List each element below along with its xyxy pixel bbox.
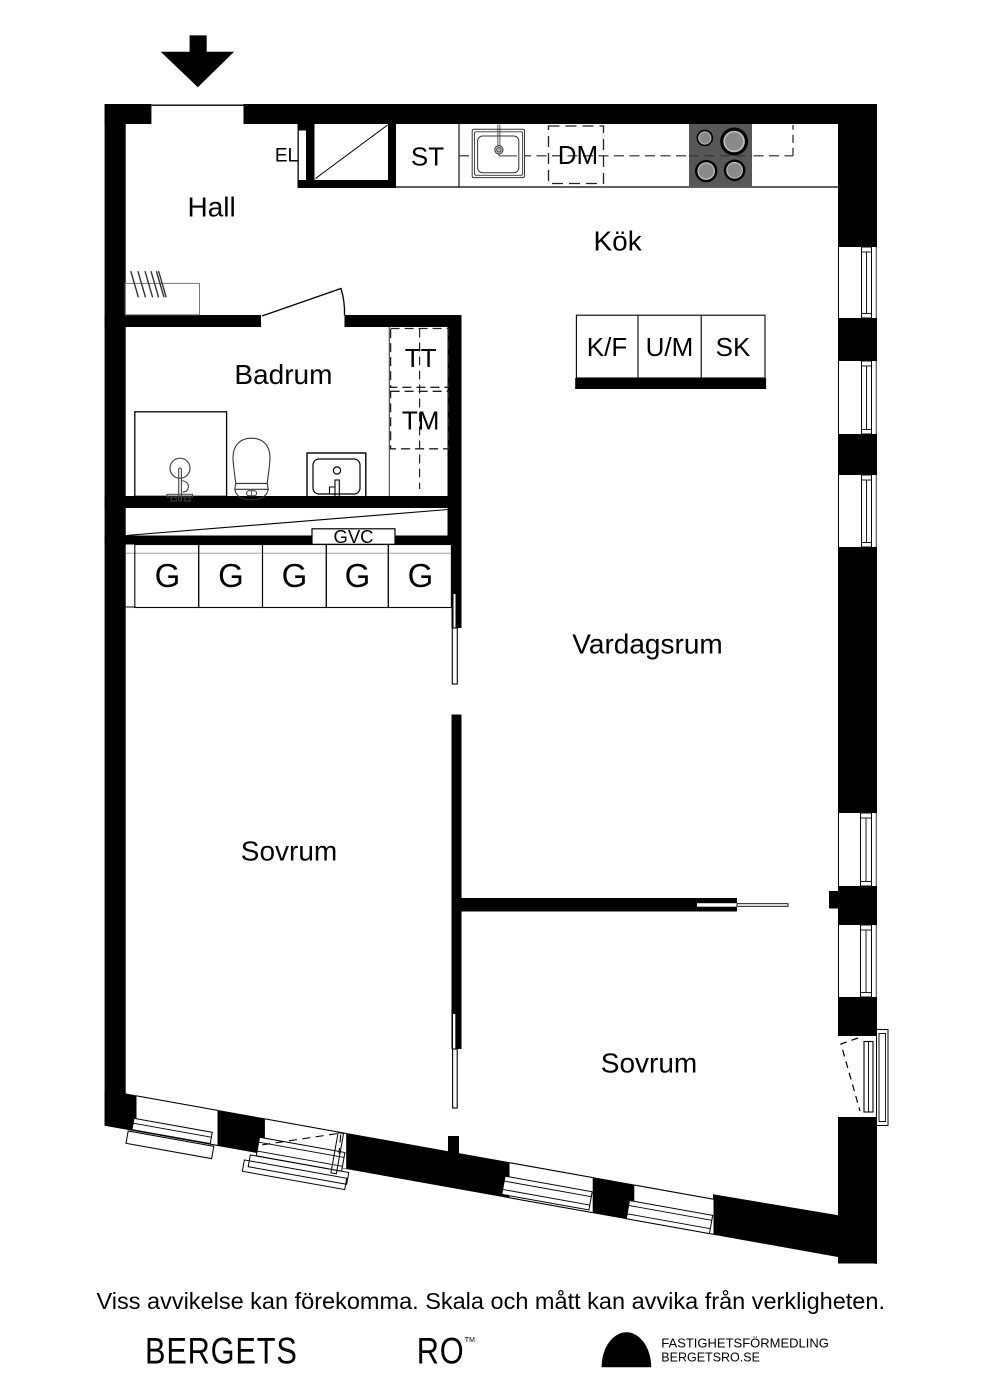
svg-text:G: G [282, 557, 308, 594]
svg-text:Hall: Hall [187, 191, 235, 222]
svg-text:Viss avvikelse kan förekomma.: Viss avvikelse kan förekomma. Skala och … [97, 1288, 885, 1314]
svg-text:Badrum: Badrum [234, 359, 332, 390]
svg-text:U/M: U/M [646, 332, 694, 362]
svg-text:Vardagsrum: Vardagsrum [572, 629, 722, 660]
svg-text:Sovrum: Sovrum [601, 1048, 697, 1079]
svg-text:TM: TM [402, 405, 440, 435]
svg-text:BERGETS: BERGETS [145, 1331, 298, 1373]
svg-text:ST: ST [411, 141, 444, 171]
svg-text:SK: SK [716, 332, 751, 362]
svg-text:G: G [408, 557, 434, 594]
svg-text:G: G [345, 557, 371, 594]
svg-text:TM: TM [465, 1337, 475, 1344]
svg-text:TT: TT [405, 343, 437, 373]
svg-text:Sovrum: Sovrum [241, 836, 337, 867]
svg-text:G: G [155, 557, 181, 594]
svg-text:G: G [218, 557, 244, 594]
svg-text:Kök: Kök [593, 226, 642, 257]
svg-text:DM: DM [558, 140, 598, 170]
svg-text:GVC: GVC [333, 526, 373, 547]
svg-text:EL: EL [275, 145, 298, 166]
svg-text:RO: RO [417, 1331, 465, 1373]
svg-text:FASTIGHETSFÖRMEDLING: FASTIGHETSFÖRMEDLING [661, 1336, 829, 1351]
svg-text:K/F: K/F [587, 332, 627, 362]
svg-text:BERGETSRO.SE: BERGETSRO.SE [661, 1350, 760, 1364]
